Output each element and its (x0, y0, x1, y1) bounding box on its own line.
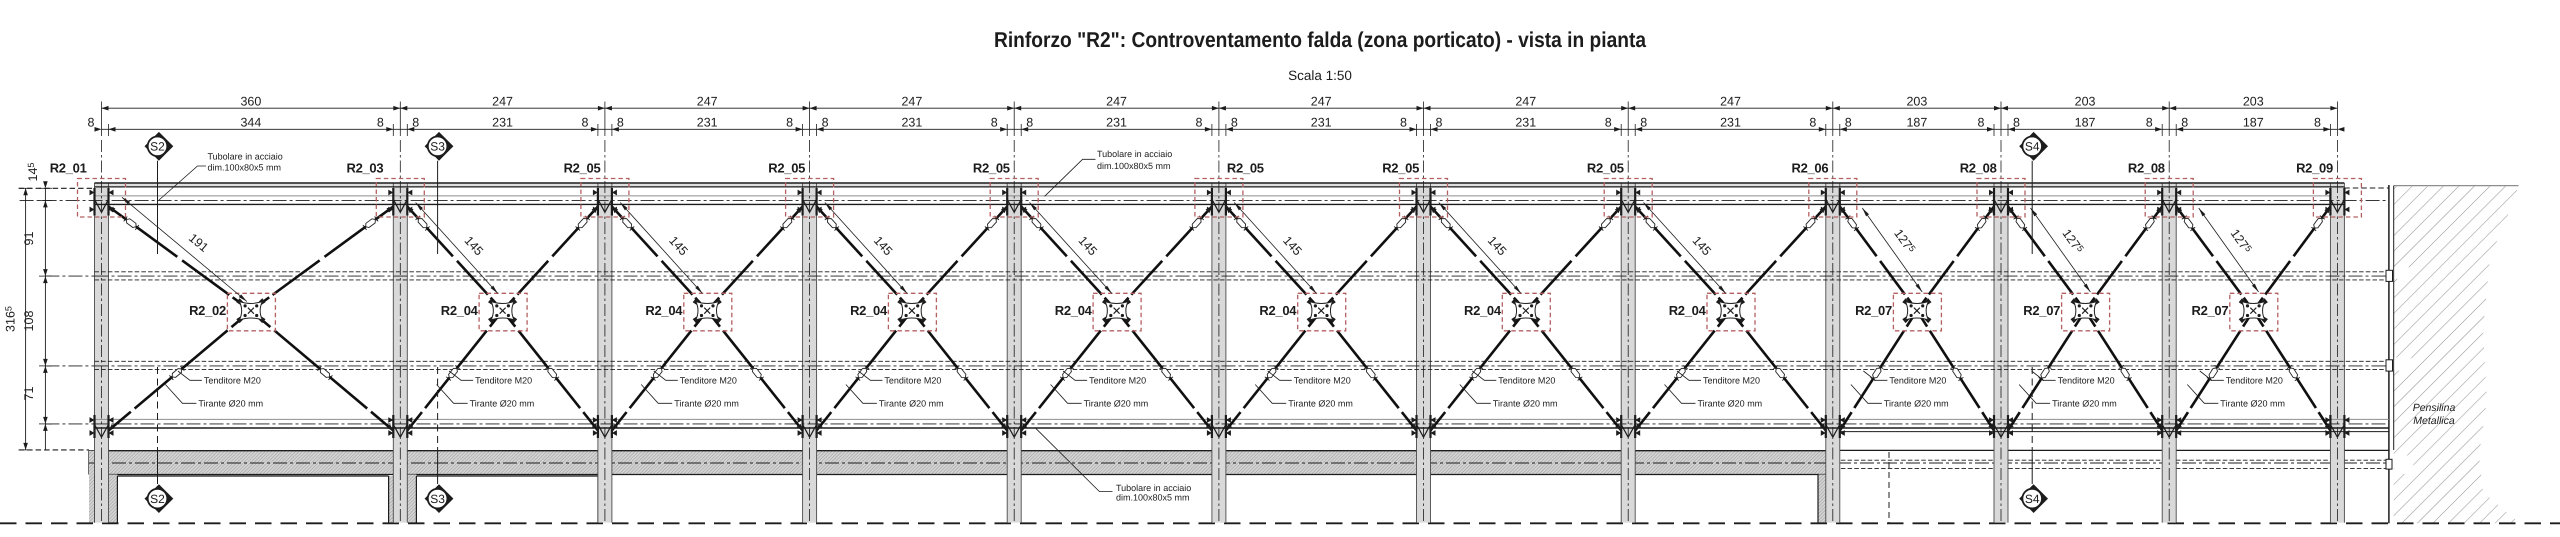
svg-text:8: 8 (2013, 116, 2020, 130)
svg-text:Tirante Ø20 mm: Tirante Ø20 mm (1698, 398, 1763, 408)
svg-text:R2_05: R2_05 (1227, 161, 1264, 176)
svg-text:Tenditore M20: Tenditore M20 (1294, 375, 1351, 385)
svg-text:91: 91 (22, 232, 36, 246)
svg-text:8: 8 (1640, 116, 1647, 130)
svg-text:8: 8 (786, 116, 793, 130)
svg-text:231: 231 (1720, 116, 1741, 130)
svg-text:Tenditore M20: Tenditore M20 (1498, 375, 1555, 385)
svg-text:8: 8 (1436, 116, 1443, 130)
svg-text:R2_04: R2_04 (1259, 303, 1297, 318)
svg-text:Rinforzo "R2": Controventament: Rinforzo "R2": Controventamento falda (z… (994, 28, 1647, 52)
svg-text:Tirante Ø20 mm: Tirante Ø20 mm (1288, 398, 1353, 408)
svg-text:108: 108 (22, 311, 36, 332)
svg-text:360: 360 (240, 94, 261, 108)
svg-text:R2_05: R2_05 (1587, 161, 1624, 176)
svg-text:231: 231 (1106, 116, 1127, 130)
svg-text:247: 247 (901, 94, 922, 108)
svg-text:R2_07: R2_07 (1855, 303, 1892, 318)
svg-text:Tirante Ø20 mm: Tirante Ø20 mm (2052, 398, 2117, 408)
svg-text:247: 247 (697, 94, 718, 108)
svg-text:R2_09: R2_09 (2296, 161, 2333, 176)
svg-text:Tirante Ø20 mm: Tirante Ø20 mm (470, 398, 535, 408)
svg-text:R2_05: R2_05 (1382, 161, 1419, 176)
svg-text:8: 8 (1400, 116, 1407, 130)
svg-text:187: 187 (2075, 116, 2096, 130)
svg-text:8: 8 (991, 116, 998, 130)
svg-text:R2_04: R2_04 (1464, 303, 1502, 318)
svg-text:R2_06: R2_06 (1791, 161, 1828, 176)
svg-text:231: 231 (901, 116, 922, 130)
svg-text:203: 203 (2243, 94, 2264, 108)
svg-text:R2_02: R2_02 (189, 303, 226, 318)
svg-text:R2_04: R2_04 (1669, 303, 1707, 318)
svg-text:S2: S2 (150, 140, 165, 154)
svg-text:Tirante Ø20 mm: Tirante Ø20 mm (2220, 398, 2285, 408)
svg-text:187: 187 (1906, 116, 1927, 130)
svg-text:S2: S2 (150, 492, 165, 506)
svg-text:Scala 1:50: Scala 1:50 (1288, 68, 1352, 83)
svg-text:Tirante Ø20 mm: Tirante Ø20 mm (1084, 398, 1149, 408)
svg-text:Tirante Ø20 mm: Tirante Ø20 mm (879, 398, 944, 408)
svg-text:Tubolare in acciaio: Tubolare in acciaio (1116, 483, 1191, 493)
svg-text:dim.100x80x5 mm: dim.100x80x5 mm (1097, 161, 1171, 171)
svg-text:Tirante Ø20 mm: Tirante Ø20 mm (1884, 398, 1949, 408)
svg-text:R2_03: R2_03 (346, 161, 383, 176)
svg-text:247: 247 (1720, 94, 1741, 108)
svg-text:231: 231 (1515, 116, 1536, 130)
svg-text:R2_05: R2_05 (973, 161, 1010, 176)
svg-text:Tenditore M20: Tenditore M20 (2226, 375, 2283, 385)
svg-text:Tenditore M20: Tenditore M20 (1889, 375, 1946, 385)
svg-text:R2_04: R2_04 (441, 303, 479, 318)
svg-text:203: 203 (1906, 94, 1927, 108)
svg-text:dim.100x80x5 mm: dim.100x80x5 mm (208, 162, 282, 172)
svg-text:Pensilina: Pensilina (2413, 402, 2456, 414)
svg-text:8: 8 (617, 116, 624, 130)
svg-text:Tenditore M20: Tenditore M20 (1089, 375, 1146, 385)
svg-text:8: 8 (1978, 116, 1985, 130)
svg-text:S4: S4 (2025, 492, 2040, 506)
svg-text:8: 8 (88, 116, 95, 130)
svg-text:231: 231 (1311, 116, 1332, 130)
svg-text:247: 247 (1311, 94, 1332, 108)
svg-text:8: 8 (1809, 116, 1816, 130)
svg-text:Tenditore M20: Tenditore M20 (680, 375, 737, 385)
svg-text:8: 8 (377, 116, 384, 130)
svg-text:344: 344 (240, 116, 261, 130)
svg-text:Tenditore M20: Tenditore M20 (204, 375, 261, 385)
svg-text:Metallica: Metallica (2413, 415, 2455, 427)
svg-text:R2_07: R2_07 (2023, 303, 2060, 318)
svg-text:187: 187 (2243, 116, 2264, 130)
svg-text:S3: S3 (430, 492, 445, 506)
svg-text:Tirante Ø20 mm: Tirante Ø20 mm (198, 398, 263, 408)
svg-text:8: 8 (2314, 116, 2321, 130)
svg-text:Tenditore M20: Tenditore M20 (475, 375, 532, 385)
svg-text:Tirante Ø20 mm: Tirante Ø20 mm (1493, 398, 1558, 408)
svg-text:8: 8 (2181, 116, 2188, 130)
svg-text:8: 8 (581, 116, 588, 130)
svg-text:R2_01: R2_01 (50, 161, 87, 176)
svg-text:R2_05: R2_05 (768, 161, 805, 176)
svg-text:R2_07: R2_07 (2191, 303, 2228, 318)
svg-text:8: 8 (412, 116, 419, 130)
svg-text:Tenditore M20: Tenditore M20 (884, 375, 941, 385)
svg-text:R2_04: R2_04 (1055, 303, 1093, 318)
svg-text:S3: S3 (430, 140, 445, 154)
svg-text:8: 8 (1845, 116, 1852, 130)
svg-text:8: 8 (2146, 116, 2153, 130)
svg-text:71: 71 (22, 387, 36, 401)
svg-text:203: 203 (2075, 94, 2096, 108)
svg-text:R2_04: R2_04 (645, 303, 683, 318)
svg-text:R2_08: R2_08 (2128, 161, 2165, 176)
svg-text:8: 8 (1026, 116, 1033, 130)
svg-text:231: 231 (492, 116, 513, 130)
svg-text:R2_05: R2_05 (564, 161, 601, 176)
svg-text:Tirante Ø20 mm: Tirante Ø20 mm (674, 398, 739, 408)
svg-text:dim.100x80x5 mm: dim.100x80x5 mm (1116, 493, 1190, 503)
svg-text:247: 247 (1515, 94, 1536, 108)
svg-text:8: 8 (1231, 116, 1238, 130)
svg-text:Tenditore M20: Tenditore M20 (2058, 375, 2115, 385)
svg-text:8: 8 (822, 116, 829, 130)
svg-text:247: 247 (1106, 94, 1127, 108)
svg-text:Tubolare in acciaio: Tubolare in acciaio (1097, 149, 1172, 159)
svg-text:R2_04: R2_04 (850, 303, 888, 318)
svg-text:8: 8 (1605, 116, 1612, 130)
svg-text:R2_08: R2_08 (1960, 161, 1997, 176)
svg-text:Tenditore M20: Tenditore M20 (1703, 375, 1760, 385)
svg-text:231: 231 (697, 116, 718, 130)
svg-text:Tubolare in acciaio: Tubolare in acciaio (208, 152, 283, 162)
svg-text:S4: S4 (2025, 140, 2040, 154)
svg-text:247: 247 (492, 94, 513, 108)
svg-text:8: 8 (1195, 116, 1202, 130)
